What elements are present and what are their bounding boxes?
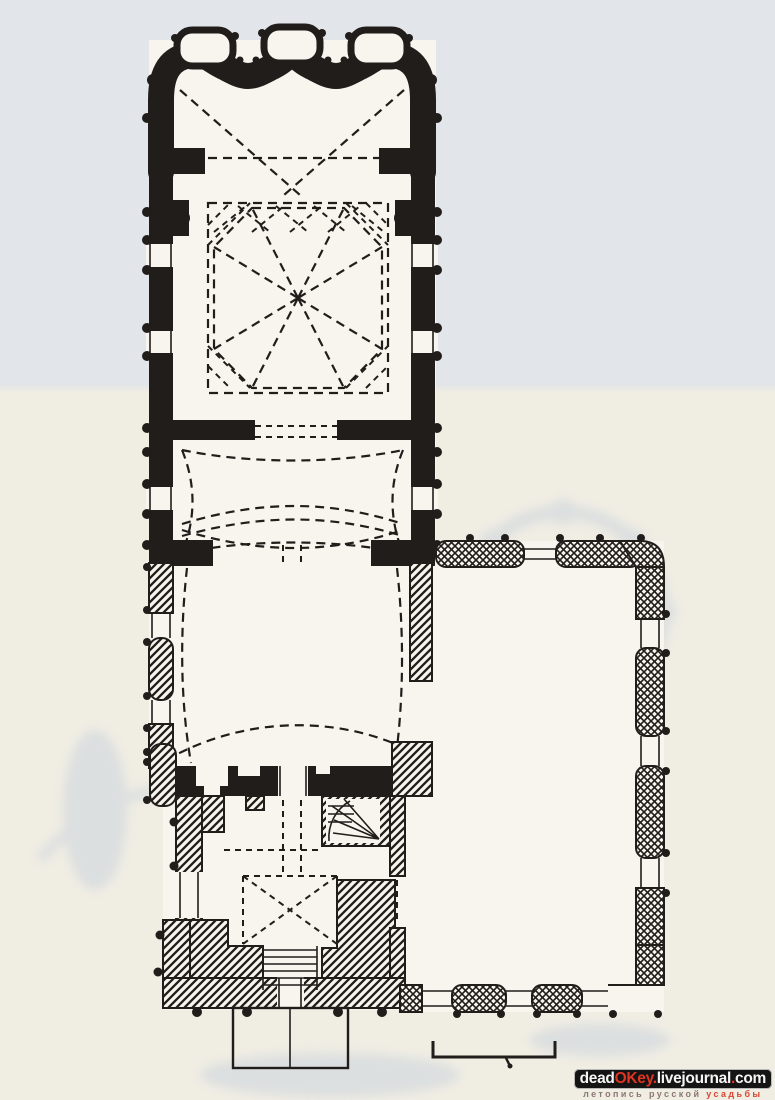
watermark-site: deadOKey.livejournal.com	[574, 1069, 772, 1090]
floor-plan-svg: page bleed-through apse	[0, 0, 775, 1100]
spiral-staircase: spiral staircase	[326, 799, 380, 843]
wm-part1: dead	[580, 1070, 615, 1087]
scanned-floor-plan-page: page bleed-through apse	[0, 0, 775, 1100]
tagline-left: летопись русской	[583, 1089, 701, 1099]
wm-part2: OKey	[615, 1070, 653, 1087]
tagline-right: усадьбы	[706, 1089, 762, 1099]
wm-part3: livejournal	[657, 1070, 731, 1087]
wm-part4: com	[735, 1070, 766, 1087]
watermark: deadOKey.livejournal.com летопись русско…	[574, 1069, 772, 1100]
watermark-tagline: летопись русской усадьбы	[574, 1090, 772, 1099]
